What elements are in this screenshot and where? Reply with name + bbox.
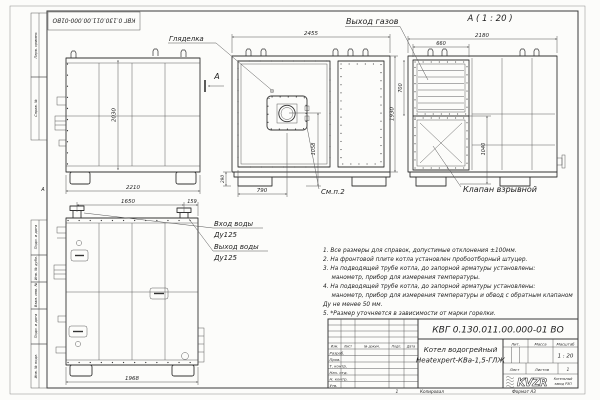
left-margin-fields: Перв. примен. Справ. № Подп. и дата Инв.… [31, 13, 47, 388]
dim-grille-width: 660 [436, 41, 446, 47]
footer-zone: 1 [396, 389, 399, 394]
product-name-line2: Heatexpert-КВа-1,5-ГЛЖ [416, 357, 505, 365]
burner-opening [279, 105, 295, 121]
dim-nozzle-offset: 159 [187, 199, 197, 205]
col-doc: № докум. [363, 345, 380, 349]
sheets-value: 1 [567, 367, 570, 372]
lifting-lug [246, 49, 251, 56]
col-data: Дата [406, 345, 415, 349]
lifting-lug [442, 49, 447, 56]
explosion-valve-panel [413, 116, 469, 170]
manufacturer-logo: KVZR Котельный завод РЭП [506, 376, 572, 389]
lifting-lug [534, 49, 539, 56]
top-designation-box: КВГ 0.130.011.00.000-01ВО [48, 12, 140, 30]
note-line: манометр, прибор для измерения температу… [332, 293, 574, 299]
dim-base-height: 290 [220, 175, 225, 183]
rear-fitting [75, 341, 80, 346]
dim-side-width: 2210 [126, 185, 140, 191]
note-line: манометр, прибор для измерения температу… [332, 275, 481, 281]
front-base [234, 172, 390, 177]
dim-section-width: 2180 [475, 33, 489, 39]
col-izm: Изм. [331, 345, 339, 349]
label-see-note: См.п.2 [321, 188, 345, 196]
dim-rear-width: 1968 [125, 376, 139, 382]
dim-front-height: 1930 [390, 107, 396, 121]
label-water-inlet-dn: Ду125 [213, 231, 238, 239]
left-side-view: 2030 2210 А [55, 49, 224, 194]
zone-letter: А [40, 187, 45, 193]
front-foot [238, 177, 272, 186]
title-block: Изм. Лист № докум. Подп. Дата Разраб. Пр… [328, 319, 578, 389]
lifting-lug [153, 49, 158, 56]
footer-copied: Копировал [420, 389, 444, 394]
col-podp: Подп. [392, 345, 402, 349]
rear-flange [54, 265, 66, 279]
front-right-panel [338, 61, 384, 167]
technical-notes: 1. Все размеры для справок, допустимые о… [322, 248, 573, 317]
product-name-line1: Котел водогрейный [424, 346, 498, 354]
gas-outlet-grille [413, 60, 469, 116]
note-line: 1. Все размеры для справок, допустимые о… [323, 248, 517, 254]
rear-stub [57, 227, 66, 233]
lifting-lug [181, 50, 186, 57]
lifting-lug [261, 49, 266, 56]
margin-label-inv-podl: Инв. № подл. [34, 354, 38, 379]
label-gas-outlet: Выход газов [346, 17, 399, 26]
top-designation-text: КВГ 0.130.011.00.000-01ВО [52, 17, 135, 23]
document-designation: КВГ 0.130.011.00.000-01 ВО [432, 326, 563, 336]
side-foot [176, 172, 196, 184]
sheet-label: Лист [509, 367, 520, 372]
front-view: 2455 1930 1058 790 290 Гляделка См.п.2 [168, 31, 398, 197]
rear-foot [70, 365, 92, 376]
row-nachotd: Нач. отд. [330, 370, 348, 375]
note-line: 4. На подводящей трубе котла, до запорно… [323, 284, 535, 290]
lifting-lug [71, 51, 76, 58]
footer-strip: 1 Копировал Формат А3 [396, 389, 537, 394]
lifting-lug [348, 49, 353, 56]
dim-side-height: 2030 [112, 108, 118, 122]
dim-door-offset: 790 [257, 188, 268, 194]
logo-caption-line2: завод РЭП [554, 382, 572, 386]
dim-valve-height: 1040 [481, 143, 487, 156]
note-line: 2. На фронтовой плите котла установлен п… [323, 257, 528, 263]
side-fitting [57, 97, 66, 105]
row-nkontr: Н. контр. [330, 376, 348, 381]
mass-label: Масса [534, 341, 547, 346]
dim-grille-height: 700 [398, 83, 404, 93]
rear-foot [172, 365, 194, 376]
margin-label-podp-data-1: Подп. и дата [34, 225, 38, 249]
rear-stub [58, 316, 66, 322]
label-water-inlet: Вход воды [214, 220, 254, 228]
label-sight-glass: Гляделка [169, 35, 204, 43]
rear-stub [56, 347, 66, 353]
section-nozzle [557, 158, 562, 165]
label-water-outlet-dn: Ду125 [213, 254, 238, 262]
note-line: 3. На подводящей трубе котла, до запорно… [323, 266, 535, 272]
side-body-outline [66, 58, 200, 172]
margin-label-inv-dubl: Инв. № дубл. [34, 256, 38, 281]
logo-text: KVZR [517, 377, 547, 389]
footer-format: Формат А3 [512, 389, 536, 394]
rear-fitting [76, 240, 81, 245]
label-water-outlet: Выход воды [214, 243, 259, 251]
margin-label-vzam-inv: Взам. инв. № [34, 283, 38, 308]
lifting-lug [428, 49, 433, 56]
side-fitting [59, 140, 66, 146]
logo-caption-line1: Котельный [554, 377, 573, 381]
front-foot [352, 177, 386, 186]
lifting-lug [363, 49, 368, 56]
scale-label: Масштаб [556, 341, 575, 346]
rear-drain [182, 353, 189, 360]
section-arrow-a: А [205, 72, 224, 92]
lit-label: Лит. [510, 341, 520, 346]
side-foot [70, 172, 90, 184]
boiler-drawing: Перв. примен. Справ. № Подп. и дата Инв.… [0, 0, 600, 400]
dim-front-width: 2455 [304, 31, 318, 37]
margin-label-sprav: Справ. № [34, 99, 38, 117]
rear-ladder [198, 328, 204, 362]
note-line: 5. *Размер уточняется в зависимости от м… [323, 311, 496, 317]
section-foot [416, 177, 446, 186]
label-explosion-valve: Клапан взрывной [463, 185, 537, 194]
side-flange [55, 116, 66, 130]
scale-value: 1 : 20 [558, 354, 574, 360]
lifting-lug [520, 49, 525, 56]
section-base [410, 172, 557, 177]
row-prov: Пров. [330, 357, 341, 362]
drawing-sheet: Перв. примен. Справ. № Подп. и дата Инв.… [0, 0, 600, 400]
row-tkontr: Т. контр. [330, 363, 348, 368]
section-view-title: А ( 1 : 20 ) [466, 14, 512, 24]
col-list: Лист [343, 345, 352, 349]
margin-label-podp-data-2: Подп. и дата [34, 314, 38, 338]
sheets-label: Листов [534, 367, 550, 372]
margin-label-perv-primen: Перв. примен. [34, 32, 38, 59]
section-mark-label: А [213, 72, 219, 81]
note-line: Ду не менее 50 мм. [322, 302, 383, 308]
rear-view: 1650 159 1968 Вход воды Ду125 Выход воды… [54, 199, 268, 385]
row-razrab: Разраб. [330, 350, 345, 355]
row-utv: Утв. [330, 383, 338, 388]
dim-nozzle-span: 1650 [121, 199, 135, 205]
lifting-lug [333, 49, 338, 56]
